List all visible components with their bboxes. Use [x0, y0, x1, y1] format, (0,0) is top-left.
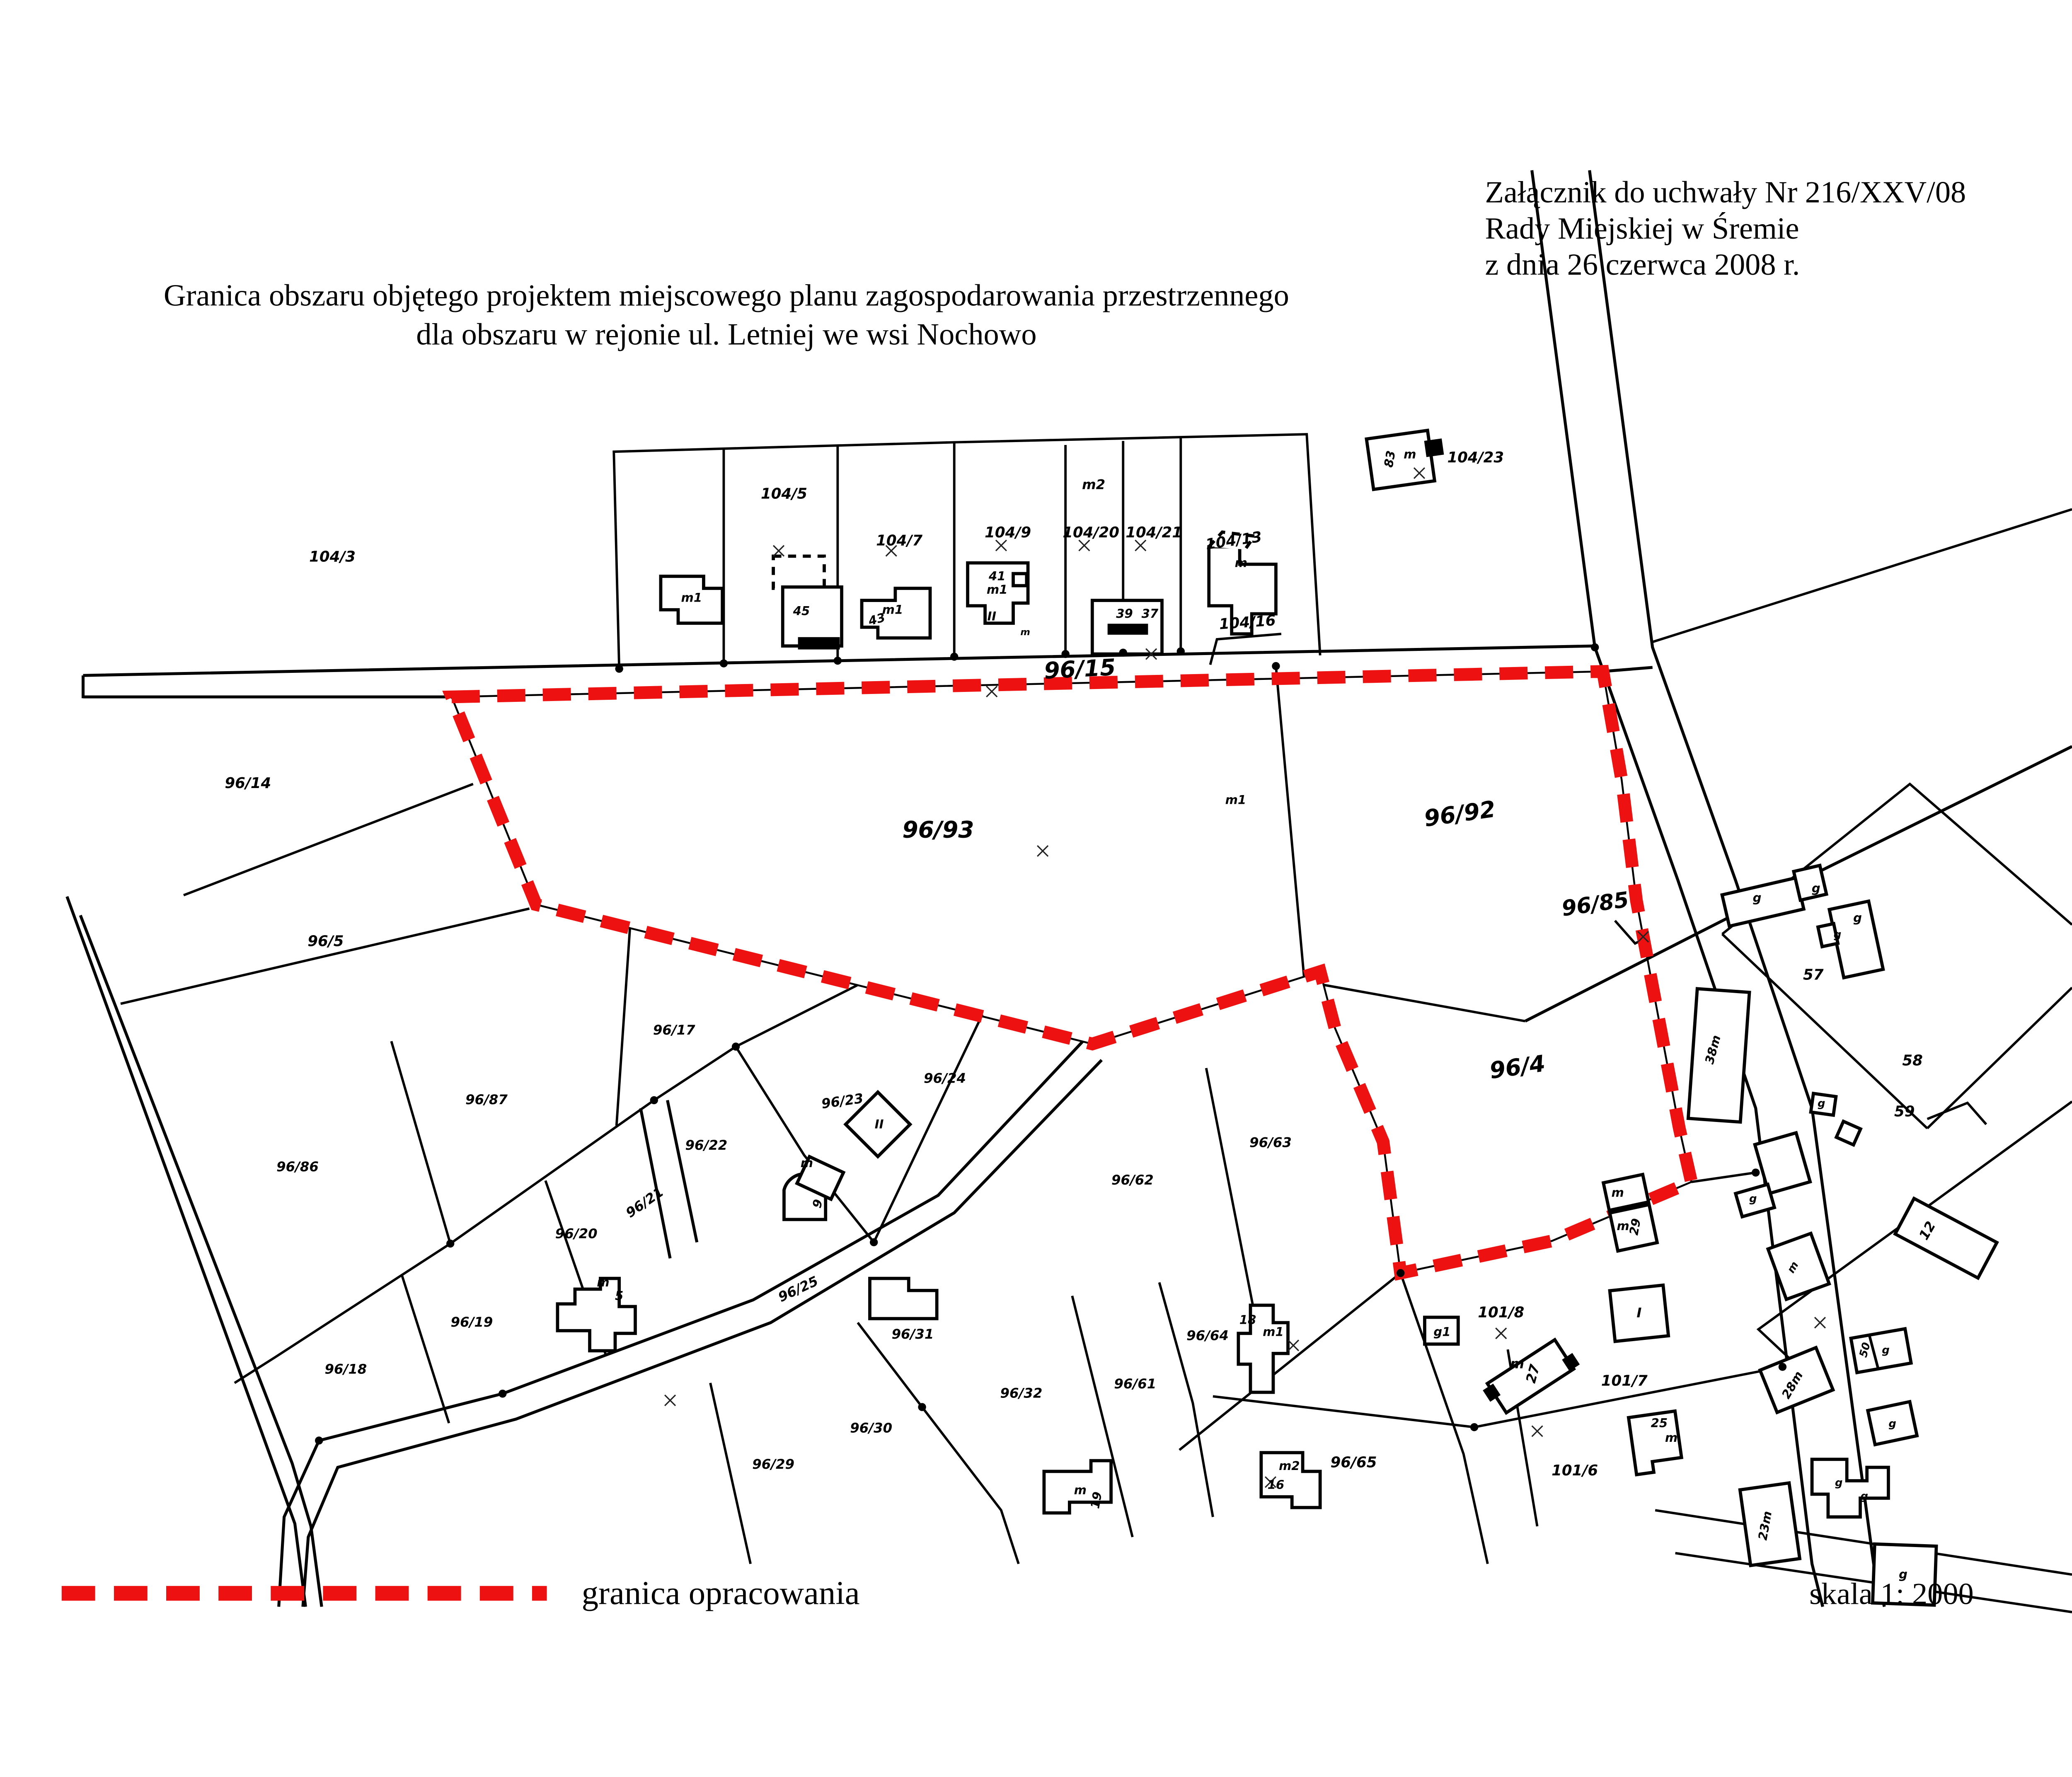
map-label: 19	[1088, 1491, 1105, 1510]
junction-dot	[1177, 647, 1185, 655]
map-label: 57	[1803, 966, 1824, 983]
page-title-line1: Granica obszaru objętego projektem miejs…	[164, 279, 1289, 313]
map-label: 104/21	[1126, 524, 1182, 541]
map-label: m1	[987, 583, 1008, 597]
leader-104-16	[1210, 634, 1281, 665]
attachment-line1: Załącznik do uchwały Nr 216/XXV/08	[1485, 176, 1966, 210]
map-label: 96/92	[1422, 795, 1497, 832]
junction-dot	[870, 1238, 878, 1246]
map-label: 37	[1142, 607, 1159, 621]
map-label: 96/85	[1560, 887, 1631, 921]
map-label: 41	[988, 569, 1006, 583]
map-label: g	[1834, 928, 1842, 941]
map-label: 5	[615, 1289, 623, 1303]
map-label: 96/64	[1186, 1327, 1229, 1343]
x-mark	[986, 686, 997, 697]
map-label: m	[1665, 1431, 1677, 1445]
junction-dot	[615, 665, 623, 672]
lane-96-21	[641, 1100, 697, 1258]
junction-dot	[1470, 1423, 1478, 1431]
map-label: 18	[1239, 1313, 1256, 1327]
map-label: g	[1853, 911, 1862, 925]
map-label: 96/17	[653, 1022, 695, 1038]
junction-dot	[315, 1436, 323, 1444]
map-label: 96/65	[1331, 1454, 1377, 1471]
x-mark	[1135, 540, 1146, 551]
map-label: g1	[1433, 1325, 1450, 1339]
legend-scale-label: skala 1: 2000	[1809, 1577, 1974, 1611]
map-label: m1	[681, 590, 702, 604]
map-label: g	[1818, 1098, 1825, 1110]
map-label: m1	[1225, 793, 1247, 807]
map-label: m	[801, 1156, 813, 1170]
map-label: g	[1860, 1490, 1868, 1502]
x-mark	[1815, 1317, 1825, 1328]
x-mark	[1532, 1426, 1543, 1436]
map-label: m	[597, 1275, 609, 1289]
map-label: 96/32	[1000, 1385, 1043, 1401]
map-label: 96/86	[276, 1159, 319, 1175]
map-label: II	[875, 1117, 884, 1131]
map-label: 104/7	[876, 532, 922, 549]
junction-dot	[650, 1096, 658, 1104]
map-label: g	[1835, 1477, 1843, 1489]
map-label: 96/30	[850, 1420, 892, 1436]
map-label: 96/29	[752, 1456, 794, 1472]
map-label: 25	[1651, 1416, 1668, 1430]
map-label: 96/18	[325, 1361, 367, 1377]
legend-boundary-label: granica opracowania	[582, 1575, 860, 1612]
map-label: 101/8	[1478, 1304, 1524, 1321]
map-label: 96/24	[924, 1070, 966, 1086]
map-label: 104/5	[761, 485, 807, 502]
junction-dot	[446, 1240, 454, 1248]
map-label: 96/19	[451, 1314, 493, 1330]
map-label: 96/25	[776, 1273, 821, 1305]
map-label: 96/93	[902, 817, 974, 843]
red-boundary	[452, 672, 1692, 1273]
junction-dot	[1119, 649, 1127, 657]
map-label: I	[1636, 1305, 1641, 1320]
page-title-line2: dla obszaru w rejonie ul. Letniej we wsi…	[416, 317, 1036, 351]
map-label: 104/23	[1447, 449, 1504, 466]
map-label: 83	[1381, 450, 1398, 469]
map-label: m2	[1082, 477, 1105, 493]
map-label: m	[1611, 1185, 1624, 1199]
map-label: g	[1888, 1418, 1896, 1430]
map-label: m1	[1263, 1325, 1284, 1339]
map-label: 96/61	[1114, 1376, 1156, 1392]
map-label: m2	[1279, 1459, 1300, 1473]
parcel-labels: 104/3104/5104/7104/9m2104/20104/21104/13…	[225, 447, 1939, 1581]
map-label: 104/16	[1219, 612, 1276, 633]
junction-dot	[720, 659, 728, 667]
map-label: g	[1882, 1344, 1890, 1356]
junction-dots	[315, 643, 1786, 1445]
map-label: m	[1235, 556, 1247, 570]
map-label: m	[1510, 1356, 1524, 1371]
map-label: 96/31	[892, 1326, 934, 1342]
map-label: 96/5	[307, 933, 344, 950]
map-label: 96/15	[1043, 654, 1116, 684]
curved-road-96-25	[279, 1041, 1102, 1607]
x-mark	[996, 540, 1007, 551]
map-label: II	[987, 609, 996, 624]
map-label: 104/9	[985, 524, 1031, 541]
map-label: g	[1812, 881, 1820, 895]
map-label: 96/20	[555, 1226, 598, 1242]
map-label: 101/7	[1601, 1372, 1648, 1389]
map-label: 104/20	[1063, 524, 1119, 541]
legend: granica opracowania skala 1: 2000	[62, 1575, 1974, 1612]
x-mark	[665, 1395, 675, 1406]
junction-dot	[834, 657, 842, 665]
x-mark	[1496, 1328, 1506, 1339]
map-label: 29	[1627, 1217, 1644, 1236]
map-label: 45	[793, 604, 810, 618]
map-label: m	[1074, 1483, 1087, 1497]
left-lane	[67, 897, 322, 1607]
junction-dot	[1397, 1269, 1404, 1277]
cadastral-map: Granica obszaru objętego projektem miejs…	[0, 0, 2072, 1777]
map-label: 96/22	[685, 1137, 728, 1153]
map-label: 96/4	[1488, 1050, 1547, 1084]
map-label: m	[1404, 447, 1416, 461]
attachment-line2: Rady Miejskiej w Śremie	[1485, 212, 1799, 246]
map-label: 59	[1894, 1103, 1915, 1120]
junction-dot	[918, 1403, 926, 1411]
junction-dot	[1272, 662, 1280, 670]
map-label: 96/63	[1249, 1135, 1292, 1151]
map-label: m1	[882, 602, 903, 617]
map-label: 104/3	[309, 548, 356, 565]
map-label: 96/62	[1111, 1172, 1154, 1188]
map-label: 96/14	[225, 775, 271, 792]
header: Granica obszaru objętego projektem miejs…	[164, 176, 1966, 352]
granica-opracowania-line	[452, 672, 1692, 1273]
map-label: 39	[1116, 607, 1133, 621]
attachment-line3: z dnia 26 czerwca 2008 r.	[1485, 248, 1800, 282]
map-label: 58	[1902, 1052, 1923, 1069]
map-label: 96/87	[465, 1092, 508, 1107]
x-mark	[1037, 846, 1048, 856]
map-label: 96/23	[821, 1090, 864, 1112]
junction-dot	[1591, 643, 1599, 651]
junction-dot	[1752, 1168, 1760, 1176]
junction-dot	[950, 653, 958, 660]
map-label: g	[1749, 1192, 1757, 1205]
junction-dot	[1779, 1363, 1786, 1371]
map-label: g	[1753, 891, 1762, 905]
junction-dot	[732, 1042, 740, 1050]
junction-dot	[499, 1390, 506, 1397]
map-label: 101/6	[1552, 1462, 1598, 1479]
map-label: 16	[1268, 1477, 1285, 1492]
x-mark	[1079, 540, 1089, 551]
map-label: m	[1020, 627, 1030, 638]
